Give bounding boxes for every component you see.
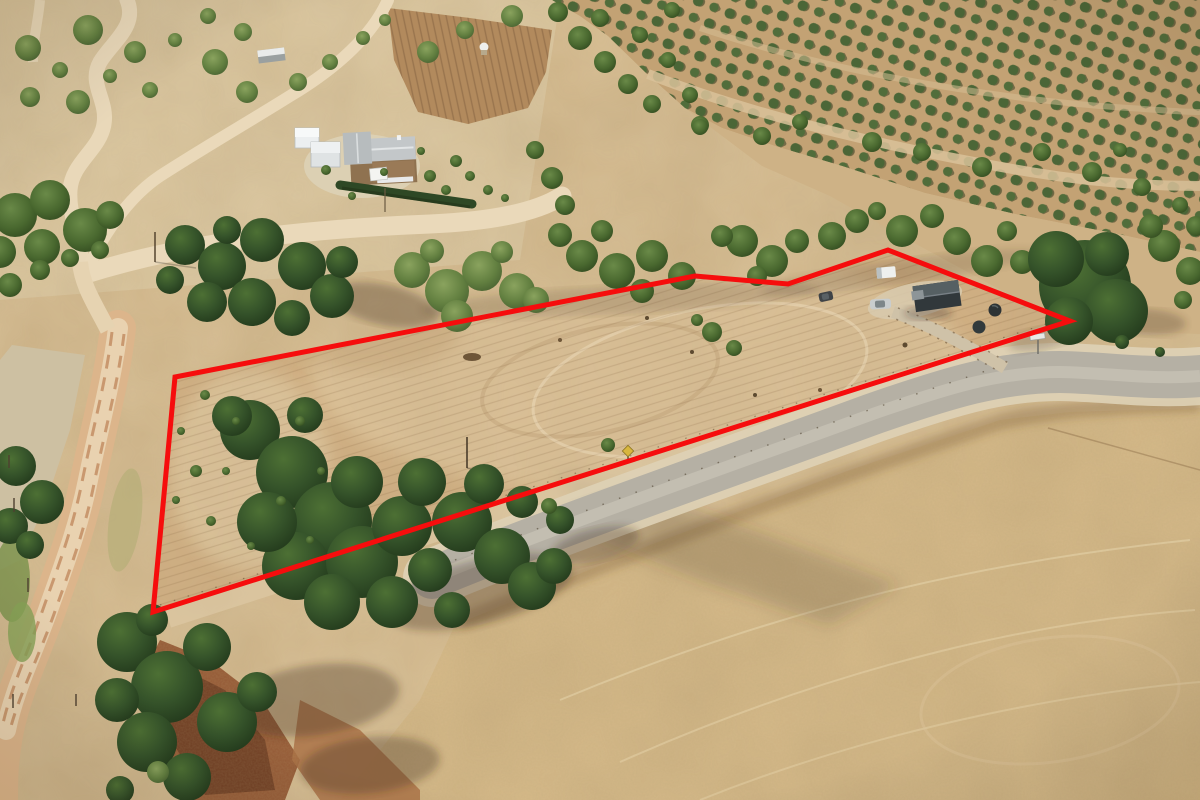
aerial-photo [0, 0, 1200, 800]
aerial-photo-viewport [0, 0, 1200, 800]
vignette [0, 0, 1200, 800]
